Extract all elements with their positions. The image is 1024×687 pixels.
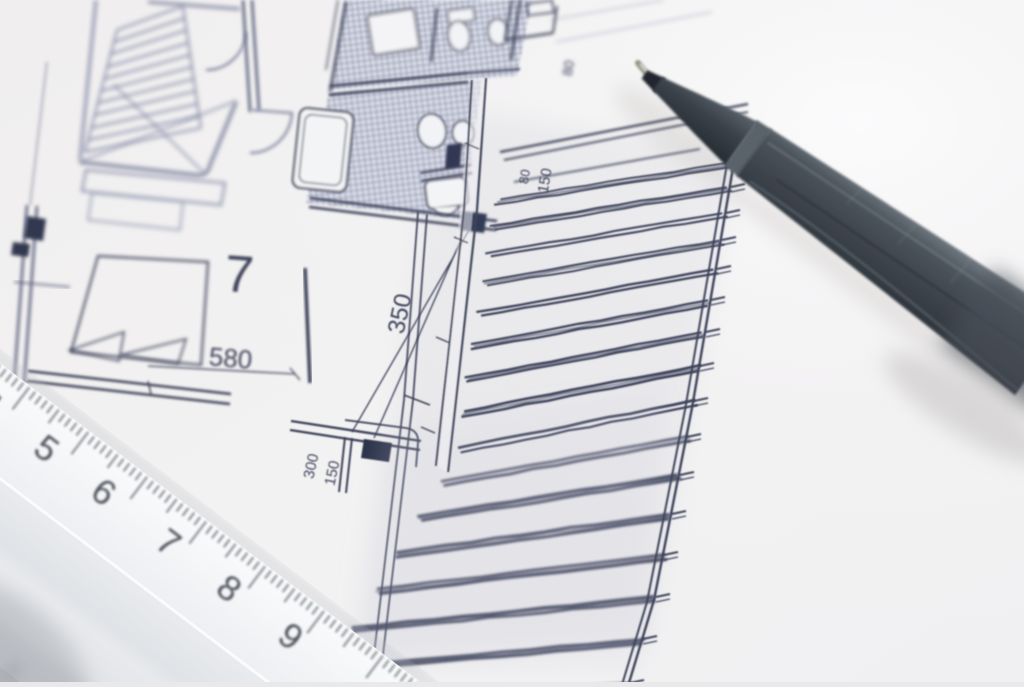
svg-text:7: 7: [223, 245, 256, 305]
svg-text:80: 80: [559, 59, 577, 77]
svg-text:80: 80: [516, 168, 533, 185]
